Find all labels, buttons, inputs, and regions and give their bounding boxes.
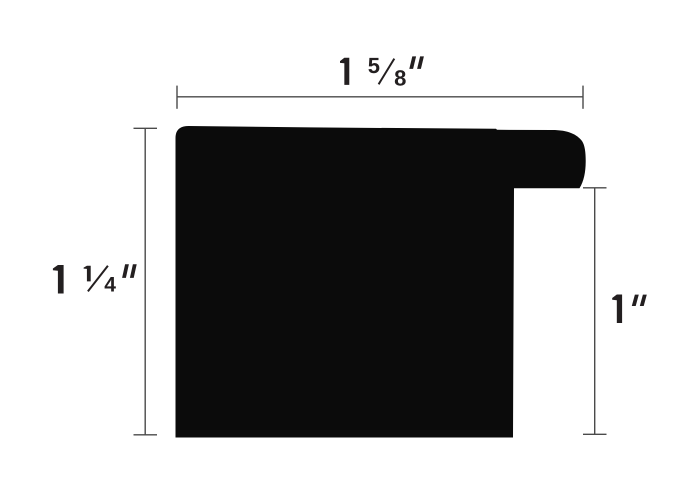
svg-text:8: 8 — [394, 65, 406, 90]
svg-text:4: 4 — [104, 273, 116, 296]
svg-text:5: 5 — [368, 53, 380, 78]
